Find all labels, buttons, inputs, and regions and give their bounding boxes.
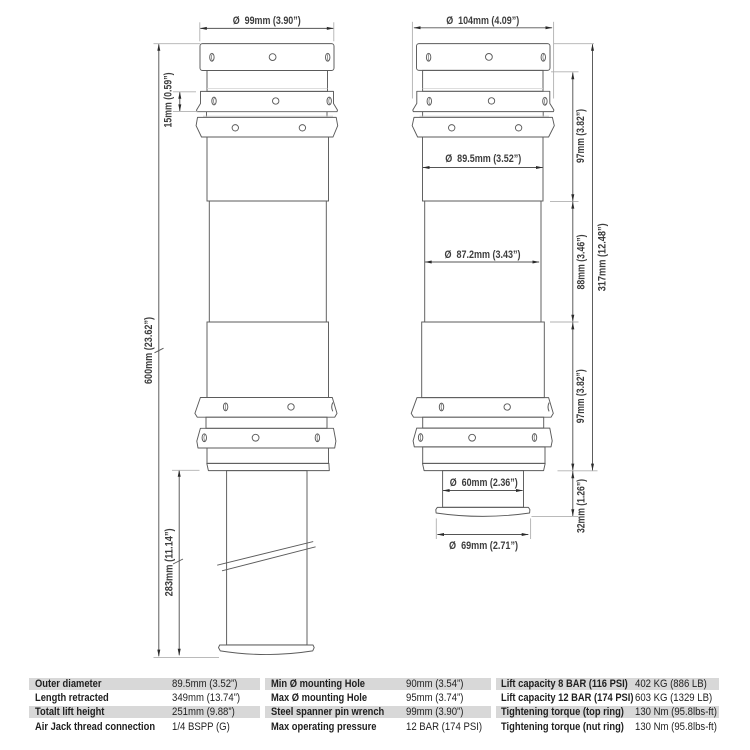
svg-text:15mm (0.59”): 15mm (0.59”) [162,72,174,127]
svg-text:Ø 89.5mm (3.52”): Ø 89.5mm (3.52”) [445,153,521,165]
svg-text:Ø 104mm (4.09”): Ø 104mm (4.09”) [446,15,519,27]
svg-text:600mm (23.62”): 600mm (23.62”) [143,317,155,384]
svg-text:283mm (11.14”): 283mm (11.14”) [164,528,176,596]
svg-text:88mm (3.46”): 88mm (3.46”) [576,234,588,289]
svg-text:Ø 99mm (3.90”): Ø 99mm (3.90”) [233,15,301,27]
svg-text:Ø 87.2mm (3.43”): Ø 87.2mm (3.43”) [445,249,521,261]
svg-text:97mm (3.82”): 97mm (3.82”) [575,369,587,423]
svg-text:Ø 60mm (2.36”): Ø 60mm (2.36”) [450,477,518,489]
svg-text:Ø 69mm (2.71”): Ø 69mm (2.71”) [449,540,518,552]
svg-text:317mm (12.48”): 317mm (12.48”) [596,223,608,291]
svg-text:32mm (1.26”): 32mm (1.26”) [575,479,587,533]
svg-text:97mm (3.82”): 97mm (3.82”) [575,109,587,163]
